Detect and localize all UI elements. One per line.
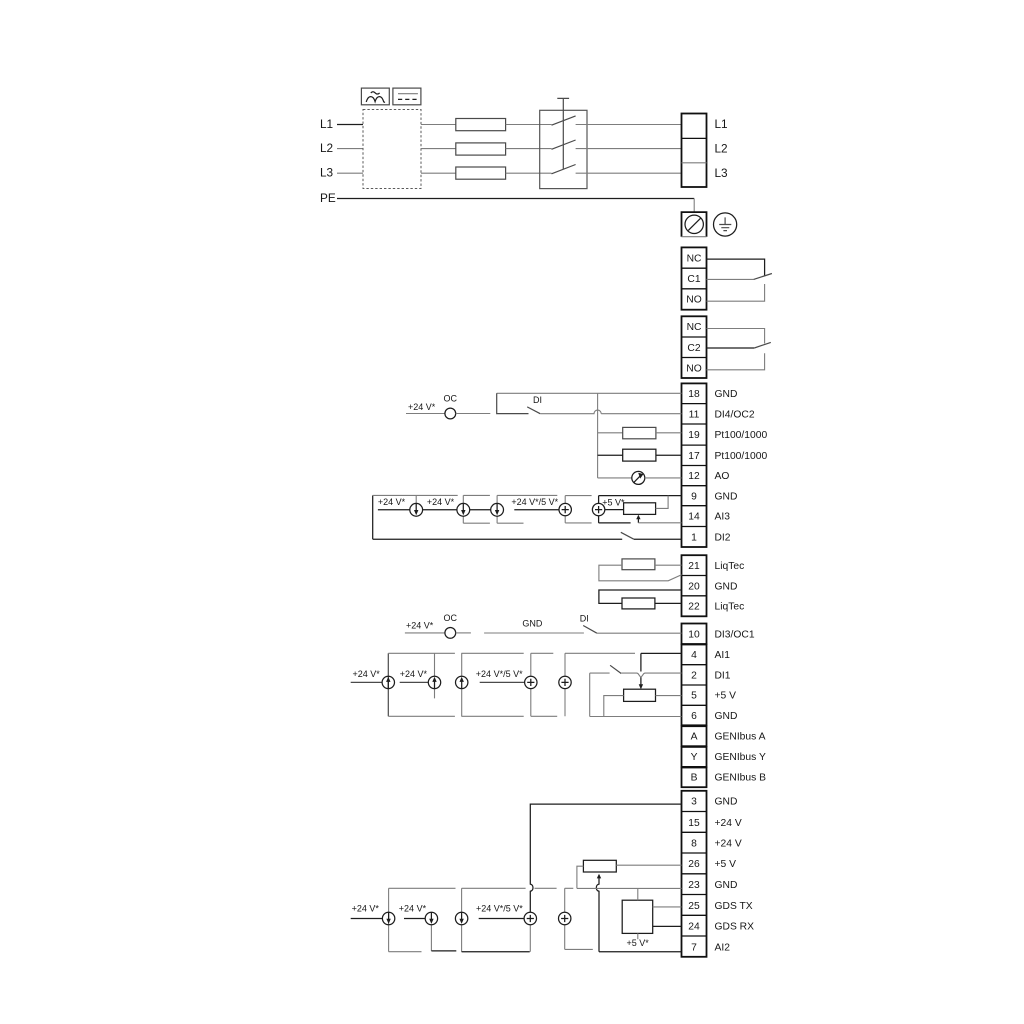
svg-text:GENIbus B: GENIbus B [715, 772, 767, 783]
svg-text:+24 V*: +24 V* [400, 669, 428, 679]
svg-text:18: 18 [688, 389, 700, 400]
svg-text:L1: L1 [715, 117, 728, 131]
svg-text:24: 24 [688, 922, 700, 933]
svg-text:9: 9 [691, 491, 697, 502]
svg-text:DI1: DI1 [715, 670, 731, 681]
svg-text:+5 V*: +5 V* [602, 497, 625, 507]
svg-text:23: 23 [688, 880, 700, 891]
svg-text:+24 V*/5 V*: +24 V*/5 V* [511, 497, 558, 507]
svg-text:LiqTec: LiqTec [715, 602, 745, 613]
svg-text:+24 V*: +24 V* [353, 669, 381, 679]
svg-text:3: 3 [691, 797, 697, 808]
svg-text:15: 15 [688, 818, 700, 829]
svg-text:AO: AO [715, 471, 730, 482]
svg-text:GND: GND [715, 711, 738, 722]
svg-text:19: 19 [688, 430, 700, 441]
svg-text:12: 12 [688, 471, 700, 482]
svg-text:NC: NC [687, 253, 702, 264]
svg-text:AI1: AI1 [715, 650, 731, 661]
svg-text:2: 2 [691, 670, 697, 681]
svg-text:NO: NO [686, 295, 701, 306]
svg-text:+5 V: +5 V [715, 859, 737, 870]
svg-text:GENIbus Y: GENIbus Y [715, 752, 766, 763]
svg-text:AI2: AI2 [715, 943, 731, 954]
svg-text:A: A [691, 731, 698, 742]
svg-text:GND: GND [715, 797, 738, 808]
svg-text:L1: L1 [320, 117, 333, 131]
svg-text:B: B [691, 772, 698, 783]
svg-text:AI3: AI3 [715, 512, 731, 523]
svg-text:14: 14 [688, 512, 700, 523]
svg-text:+24 V*: +24 V* [378, 497, 406, 507]
svg-text:OC: OC [444, 613, 458, 623]
svg-text:L3: L3 [320, 166, 334, 180]
svg-text:GND: GND [715, 880, 738, 891]
svg-text:8: 8 [691, 839, 697, 850]
svg-text:6: 6 [691, 711, 697, 722]
svg-text:26: 26 [688, 859, 700, 870]
svg-text:+24 V: +24 V [715, 818, 742, 829]
svg-text:+24 V: +24 V [715, 839, 742, 850]
svg-text:+24 V*: +24 V* [427, 497, 455, 507]
svg-text:+24 V*: +24 V* [406, 621, 434, 631]
svg-text:C1: C1 [687, 274, 700, 285]
svg-text:20: 20 [688, 581, 700, 592]
svg-text:Pt100/1000: Pt100/1000 [715, 451, 768, 462]
svg-text:+24 V*/5 V*: +24 V*/5 V* [476, 904, 523, 914]
svg-text:GND: GND [715, 491, 738, 502]
svg-text:+24 V*: +24 V* [399, 904, 427, 914]
svg-text:GND: GND [522, 619, 543, 629]
svg-text:DI: DI [580, 614, 589, 624]
svg-text:5: 5 [691, 691, 697, 702]
svg-text:DI4/OC2: DI4/OC2 [715, 409, 755, 420]
svg-text:11: 11 [689, 409, 700, 420]
svg-text:L2: L2 [715, 141, 728, 155]
svg-text:GDS RX: GDS RX [715, 922, 755, 933]
svg-text:LiqTec: LiqTec [715, 561, 745, 572]
svg-text:L2: L2 [320, 141, 333, 155]
svg-text:+24 V*/5 V*: +24 V*/5 V* [476, 669, 523, 679]
svg-text:+24 V*: +24 V* [352, 904, 380, 914]
svg-text:PE: PE [320, 191, 336, 205]
svg-text:7: 7 [691, 943, 697, 954]
svg-text:+5 V: +5 V [715, 691, 737, 702]
svg-text:+5 V*: +5 V* [627, 938, 650, 948]
svg-text:DI3/OC1: DI3/OC1 [715, 629, 755, 640]
svg-text:Y: Y [691, 752, 698, 763]
svg-text:17: 17 [688, 451, 700, 462]
svg-text:L3: L3 [715, 166, 729, 180]
svg-text:C2: C2 [687, 343, 700, 354]
svg-text:NO: NO [686, 363, 701, 374]
svg-text:GND: GND [715, 581, 738, 592]
svg-text:OC: OC [444, 393, 458, 403]
svg-text:+24 V*: +24 V* [408, 402, 436, 412]
svg-text:4: 4 [691, 650, 697, 661]
svg-text:GDS TX: GDS TX [715, 901, 753, 912]
svg-text:GND: GND [715, 389, 738, 400]
svg-text:GENIbus A: GENIbus A [715, 731, 766, 742]
svg-text:Pt100/1000: Pt100/1000 [715, 430, 768, 441]
svg-text:22: 22 [688, 602, 700, 613]
svg-text:DI: DI [533, 395, 542, 405]
svg-text:DI2: DI2 [715, 532, 731, 543]
svg-text:10: 10 [688, 629, 700, 640]
svg-text:21: 21 [688, 561, 700, 572]
svg-text:1: 1 [691, 532, 697, 543]
svg-text:25: 25 [688, 901, 700, 912]
svg-text:NC: NC [687, 322, 702, 333]
